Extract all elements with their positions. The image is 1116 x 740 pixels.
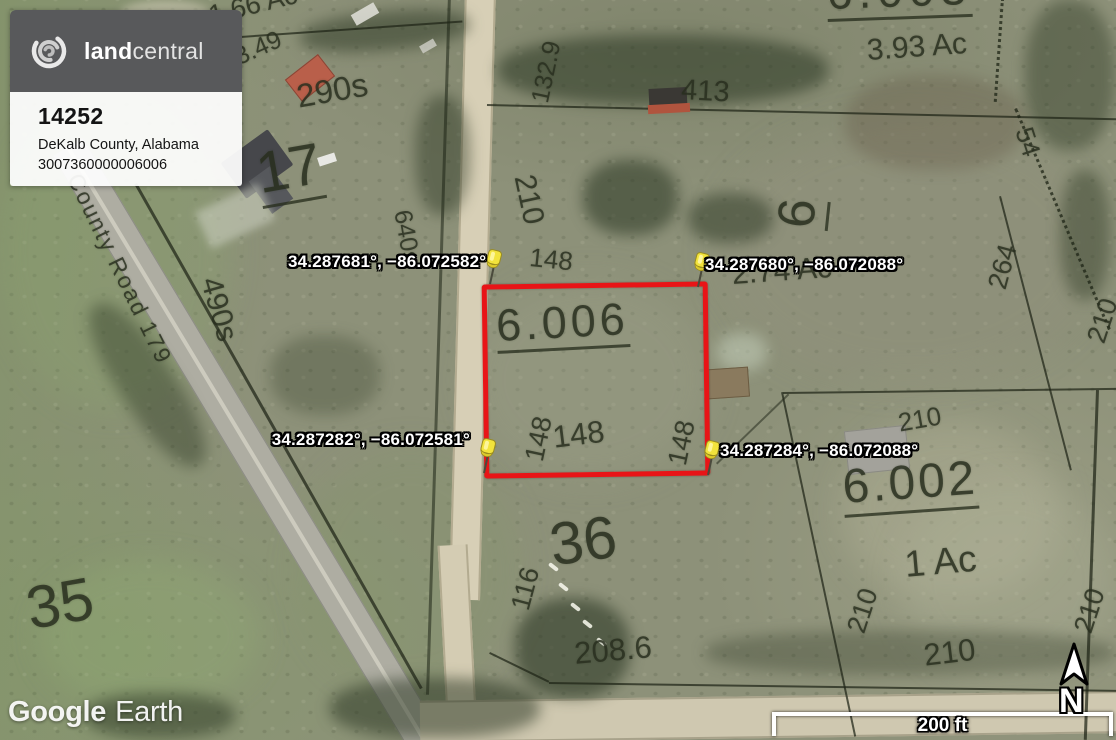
pin-coordinates-bottom-right: 34.287284°, −86.072088°	[720, 441, 918, 461]
listing-parcel-number: 3007360000006006	[38, 157, 232, 175]
listing-card-header: landcentral	[10, 10, 242, 92]
map-label: 210	[1070, 585, 1110, 636]
map-label: 413	[680, 76, 730, 107]
map-label: 35	[22, 568, 98, 639]
map-label: 210	[896, 402, 943, 435]
watermark-earth: Earth	[115, 696, 183, 728]
satellite-map[interactable]: 1.66 Ac3.49290s17County Road 179490s640s…	[0, 0, 1116, 740]
map-label: County Road 179	[63, 170, 175, 368]
map-label: 490s	[195, 274, 242, 345]
map-label: 210	[1083, 295, 1116, 346]
pushpin-icon-bottom-left[interactable]	[473, 436, 499, 476]
map-label: 208.6	[573, 631, 653, 669]
watermark-google: Google	[8, 696, 106, 728]
landcentral-logo-icon	[27, 29, 71, 73]
map-label: 3.93 Ac	[866, 29, 968, 66]
map-label: 54	[1011, 124, 1045, 160]
map-label: 210	[843, 585, 883, 636]
map-label: 210	[509, 172, 549, 227]
map-label: 290s	[294, 68, 370, 113]
map-label: 6.002	[841, 455, 980, 518]
google-earth-watermark: GoogleEarth	[8, 696, 183, 729]
listing-location: DeKalb County, Alabama	[38, 137, 232, 155]
map-label: 6.003	[826, 0, 973, 22]
map-label: 264	[984, 241, 1022, 292]
map-label: 6	[770, 196, 831, 231]
map-label: 132.9	[528, 39, 565, 105]
map-label: 17	[252, 135, 327, 209]
map-label: 36	[546, 507, 620, 576]
listing-card: landcentral 14252 DeKalb County, Alabama…	[10, 10, 242, 186]
scale-bar-label: 200 ft	[918, 715, 968, 737]
map-label: 1 Ac	[903, 540, 978, 583]
listing-id: 14252	[38, 103, 232, 130]
pin-coordinates-top-left: 34.287681°, −86.072582°	[288, 252, 478, 272]
landcentral-wordmark: landcentral	[84, 38, 204, 65]
north-label: N	[1059, 682, 1084, 721]
listing-card-body: 14252 DeKalb County, Alabama 30073600000…	[10, 92, 242, 186]
wordmark-land: land	[84, 38, 132, 64]
map-label: 210	[922, 634, 977, 671]
pin-coordinates-top-right: 34.287680°, −86.072088°	[705, 255, 903, 275]
parcel-outline	[482, 281, 711, 478]
map-label: 148	[528, 244, 574, 274]
wordmark-central: central	[132, 38, 203, 64]
map-label: 116	[507, 564, 544, 613]
pin-coordinates-bottom-left: 34.287282°, −86.072581°	[262, 430, 470, 450]
